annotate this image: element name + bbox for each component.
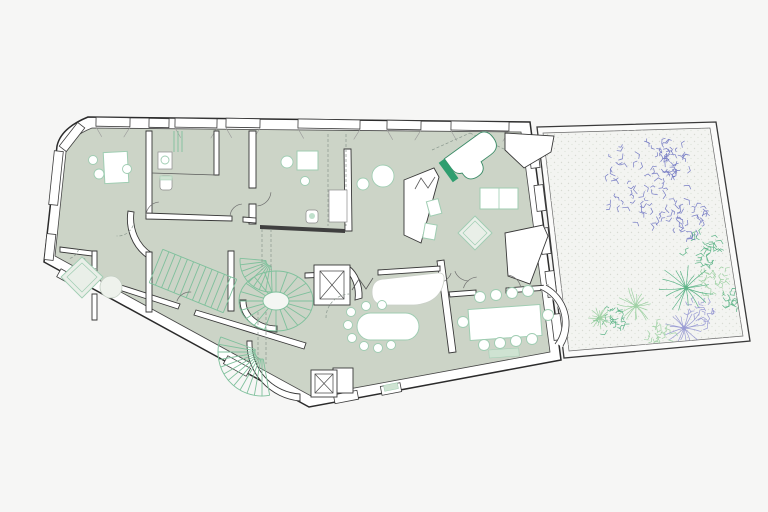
washbasin: [161, 156, 169, 164]
chair: [347, 308, 356, 317]
chair: [360, 342, 369, 351]
office-chair: [123, 165, 132, 174]
floor-plan-page: [0, 0, 768, 512]
office-chair: [94, 169, 104, 179]
elevator-1: [314, 265, 350, 305]
hall-table: [357, 178, 369, 190]
dining-chair: [458, 317, 469, 328]
dining-chair: [523, 286, 534, 297]
floor-plan-canvas: [0, 0, 768, 512]
dining-chair: [511, 336, 522, 347]
dining-chair: [527, 334, 538, 345]
dining-chair: [495, 338, 506, 349]
office-chair: [89, 156, 98, 165]
hall-table: [372, 165, 394, 187]
dining-chair: [479, 340, 490, 351]
cabinet: [329, 190, 347, 222]
chair: [344, 321, 353, 330]
chair: [281, 156, 293, 168]
dining-chair: [491, 290, 502, 301]
toilet-tank: [160, 176, 172, 180]
round-table: [100, 276, 122, 298]
chair: [362, 302, 371, 311]
chair: [378, 301, 387, 310]
dining-chair: [475, 292, 486, 303]
elevator-2: [311, 370, 337, 397]
chair: [301, 177, 310, 186]
square-table: [297, 151, 318, 170]
toilet-seat: [309, 213, 315, 219]
garden-gravel-texture: [543, 128, 743, 351]
armchair: [423, 223, 437, 240]
chair: [374, 344, 383, 353]
oval-table: [357, 313, 419, 340]
chair: [387, 341, 396, 350]
chair: [348, 334, 357, 343]
dining-chair: [543, 310, 554, 321]
dining-chair: [507, 288, 518, 299]
